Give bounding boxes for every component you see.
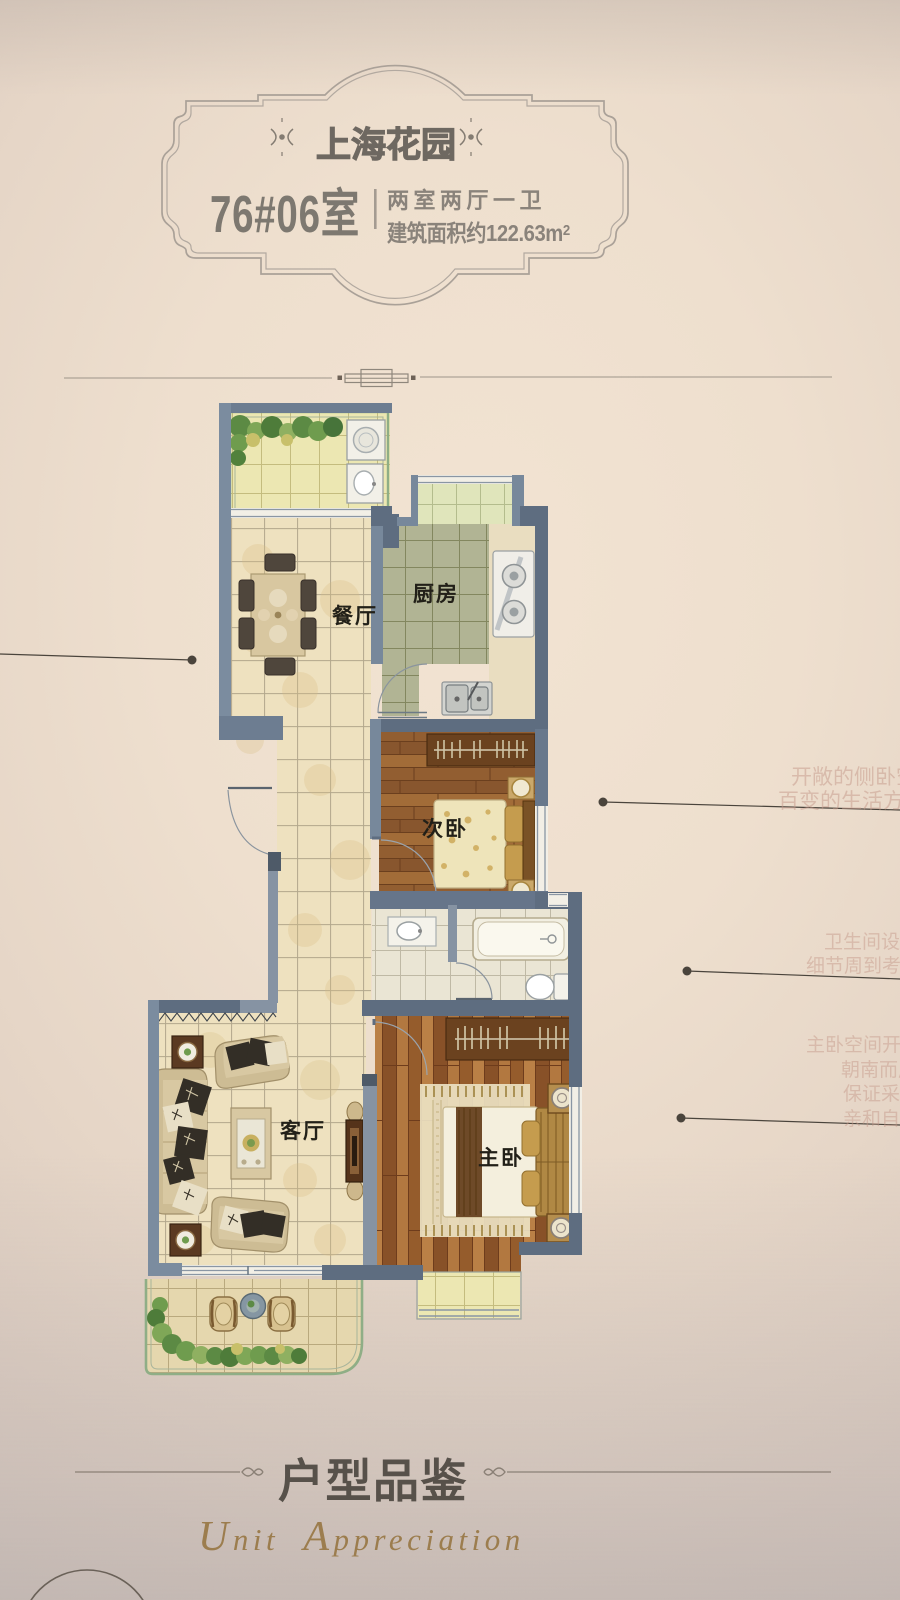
svg-text:厨房: 厨房 xyxy=(413,582,459,606)
svg-text:餐厅: 餐厅 xyxy=(332,604,378,628)
svg-text:客厅: 客厅 xyxy=(280,1119,326,1143)
svg-text:主卧: 主卧 xyxy=(478,1147,524,1170)
svg-text:次卧: 次卧 xyxy=(422,817,468,841)
